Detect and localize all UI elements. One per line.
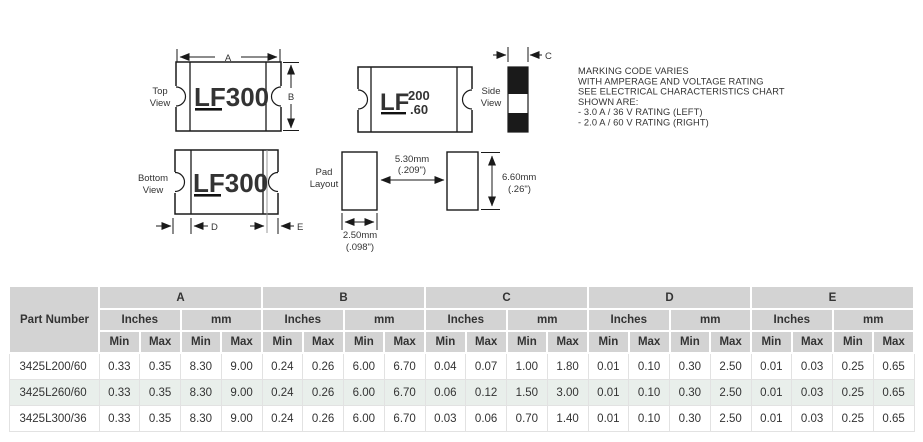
value-cell: 0.01: [588, 353, 629, 380]
minmax-header-min: Min: [425, 331, 466, 353]
dim-e-label: E: [297, 222, 303, 233]
dim-c: [493, 47, 542, 62]
pad-layout-label: Pad Layout: [310, 167, 339, 190]
value-cell: 3.00: [547, 380, 588, 406]
side-view-top-terminal: [508, 67, 528, 94]
pad-gap-inches: (.209"): [398, 165, 426, 176]
minmax-header-max: Max: [303, 331, 344, 353]
top-view-label: Top View: [150, 86, 171, 109]
top-view-label-line2: View: [150, 98, 171, 109]
lf-logo-underline: [381, 112, 406, 114]
dim-pad-width: [342, 213, 377, 230]
dimensions-table-section: Part Number A B C D E Inches mm Inches m…: [8, 285, 915, 432]
minmax-header-max: Max: [384, 331, 425, 353]
value-cell: 6.00: [344, 353, 385, 380]
group-header-d: D: [588, 286, 751, 309]
group-header-b: B: [262, 286, 425, 309]
minmax-header-min: Min: [344, 331, 385, 353]
table-row: 3425L260/600.330.358.309.000.240.266.006…: [9, 380, 914, 406]
value-cell: 6.00: [344, 406, 385, 432]
part-number-header: Part Number: [9, 286, 99, 353]
units-header-mm: mm: [344, 309, 426, 331]
value-cell: 0.25: [833, 380, 874, 406]
note-line: MARKING CODE VARIES: [578, 66, 689, 76]
part-number-cell: 3425L200/60: [9, 353, 99, 380]
marking-note: MARKING CODE VARIES WITH AMPERAGE AND VO…: [578, 66, 785, 128]
note-line: SEE ELECTRICAL CHARACTERISTICS CHART: [578, 87, 785, 97]
minmax-header-min: Min: [181, 331, 222, 353]
value-cell: 0.25: [833, 406, 874, 432]
value-cell: 0.26: [303, 353, 344, 380]
bottom-view-body: LF300: [173, 150, 280, 233]
top-view-marking: LF300: [194, 82, 269, 112]
bottom-view-label-line2: View: [143, 185, 164, 196]
group-header-a: A: [99, 286, 262, 309]
value-cell: 0.30: [670, 353, 711, 380]
value-cell: 1.50: [507, 380, 548, 406]
value-cell: 0.10: [629, 380, 670, 406]
value-cell: 8.30: [181, 353, 222, 380]
minmax-header-min: Min: [588, 331, 629, 353]
value-cell: 1.40: [547, 406, 588, 432]
value-cell: 0.07: [466, 353, 507, 380]
value-cell: 9.00: [221, 406, 262, 432]
top-view-body: LF300: [174, 62, 283, 131]
value-cell: 0.65: [873, 353, 914, 380]
part-number-cell: 3425L300/36: [9, 406, 99, 432]
minmax-header-max: Max: [629, 331, 670, 353]
value-cell: 0.24: [262, 353, 303, 380]
units-header-inches: Inches: [588, 309, 670, 331]
units-header-mm: mm: [181, 309, 263, 331]
group-header-c: C: [425, 286, 588, 309]
units-header-mm: mm: [833, 309, 915, 331]
dim-e: [250, 218, 294, 234]
units-header-inches: Inches: [751, 309, 833, 331]
dim-pad-height: [481, 153, 500, 210]
minmax-header-min: Min: [833, 331, 874, 353]
minmax-header-min: Min: [262, 331, 303, 353]
right-unit-logo: LF: [380, 89, 409, 116]
package-dimension-diagram: Top View A LF300 B LF 200: [0, 0, 923, 283]
units-header-inches: Inches: [99, 309, 181, 331]
value-cell: 6.70: [384, 406, 425, 432]
value-cell: 0.35: [140, 406, 181, 432]
table-row: 3425L200/600.330.358.309.000.240.266.006…: [9, 353, 914, 380]
value-cell: 0.35: [140, 380, 181, 406]
pad-width-inches: (.098"): [346, 242, 374, 253]
minmax-header-max: Max: [873, 331, 914, 353]
value-cell: 2.50: [710, 406, 751, 432]
side-view-label-line2: View: [481, 98, 502, 109]
value-cell: 8.30: [181, 380, 222, 406]
dim-d-label: D: [211, 222, 218, 233]
value-cell: 6.70: [384, 353, 425, 380]
value-cell: 0.10: [629, 353, 670, 380]
pad-width-mm: 2.50mm: [343, 230, 377, 241]
side-view-label-line1: Side: [481, 86, 500, 97]
part-number-cell: 3425L260/60: [9, 380, 99, 406]
value-cell: 0.26: [303, 406, 344, 432]
value-cell: 0.33: [99, 353, 140, 380]
value-cell: 0.01: [751, 406, 792, 432]
note-line: SHOWN ARE:: [578, 97, 638, 107]
minmax-header-min: Min: [751, 331, 792, 353]
minmax-header-max: Max: [466, 331, 507, 353]
lf-logo-underline: [195, 108, 222, 111]
dim-c-label: C: [545, 51, 552, 62]
right-unit-marking-bottom: .60: [410, 102, 428, 117]
value-cell: 0.26: [303, 380, 344, 406]
group-header-e: E: [751, 286, 914, 309]
value-cell: 0.65: [873, 406, 914, 432]
value-cell: 6.70: [384, 380, 425, 406]
value-cell: 2.50: [710, 380, 751, 406]
right-unit-marking-top: 200: [408, 88, 430, 103]
minmax-header-min: Min: [670, 331, 711, 353]
value-cell: 0.30: [670, 406, 711, 432]
dim-b-label: B: [288, 92, 294, 103]
value-cell: 0.06: [425, 380, 466, 406]
pad-height-inches: (.26"): [508, 184, 531, 195]
top-view-label-line1: Top: [152, 86, 167, 97]
value-cell: 0.01: [751, 380, 792, 406]
value-cell: 0.65: [873, 380, 914, 406]
value-cell: 9.00: [221, 353, 262, 380]
side-view-body: [508, 67, 528, 132]
value-cell: 0.24: [262, 406, 303, 432]
side-view-bottom-terminal: [508, 113, 528, 132]
value-cell: 1.80: [547, 353, 588, 380]
value-cell: 0.03: [792, 353, 833, 380]
value-cell: 0.01: [751, 353, 792, 380]
datasheet-page: { "colors":{ "table_header_bg":"#d3d3d3"…: [0, 0, 923, 442]
value-cell: 0.03: [792, 380, 833, 406]
lf-logo-underline: [194, 194, 221, 197]
dim-d: [156, 218, 208, 234]
value-cell: 0.35: [140, 353, 181, 380]
value-cell: 0.30: [670, 380, 711, 406]
minmax-header-max: Max: [710, 331, 751, 353]
note-line: - 3.0 A / 36 V RATING (LEFT): [578, 107, 703, 117]
value-cell: 0.03: [425, 406, 466, 432]
units-header-mm: mm: [670, 309, 752, 331]
left-pad: [342, 152, 377, 210]
dimensions-table: Part Number A B C D E Inches mm Inches m…: [8, 285, 915, 432]
minmax-header-max: Max: [792, 331, 833, 353]
value-cell: 0.01: [588, 380, 629, 406]
value-cell: 2.50: [710, 353, 751, 380]
value-cell: 9.00: [221, 380, 262, 406]
table-row: 3425L300/360.330.358.309.000.240.266.006…: [9, 406, 914, 432]
value-cell: 0.33: [99, 406, 140, 432]
units-header-inches: Inches: [262, 309, 344, 331]
minmax-header-min: Min: [507, 331, 548, 353]
pad-height-mm: 6.60mm: [502, 172, 536, 183]
pad-layout-label-line2: Layout: [310, 179, 339, 190]
pad-gap-mm: 5.30mm: [395, 154, 429, 165]
minmax-header-max: Max: [221, 331, 262, 353]
units-header-inches: Inches: [425, 309, 507, 331]
value-cell: 0.04: [425, 353, 466, 380]
right-pad: [447, 152, 478, 210]
minmax-header-max: Max: [547, 331, 588, 353]
right-unit-body: LF 200 .60: [356, 67, 474, 132]
bottom-view-label-line1: Bottom: [138, 173, 168, 184]
pad-layout-label-line1: Pad: [316, 167, 333, 178]
minmax-header-min: Min: [99, 331, 140, 353]
minmax-header-max: Max: [140, 331, 181, 353]
value-cell: 6.00: [344, 380, 385, 406]
value-cell: 0.12: [466, 380, 507, 406]
value-cell: 0.24: [262, 380, 303, 406]
bottom-view-label: Bottom View: [138, 173, 168, 196]
value-cell: 0.03: [792, 406, 833, 432]
note-line: - 2.0 A / 60 V RATING (RIGHT): [578, 118, 709, 128]
value-cell: 0.10: [629, 406, 670, 432]
value-cell: 0.06: [466, 406, 507, 432]
bottom-view-marking: LF300: [193, 168, 268, 198]
units-header-mm: mm: [507, 309, 589, 331]
value-cell: 1.00: [507, 353, 548, 380]
note-line: WITH AMPERAGE AND VOLTAGE RATING: [578, 76, 764, 86]
value-cell: 0.33: [99, 380, 140, 406]
value-cell: 8.30: [181, 406, 222, 432]
side-view-label: Side View: [481, 86, 502, 109]
value-cell: 0.01: [588, 406, 629, 432]
value-cell: 0.25: [833, 353, 874, 380]
value-cell: 0.70: [507, 406, 548, 432]
